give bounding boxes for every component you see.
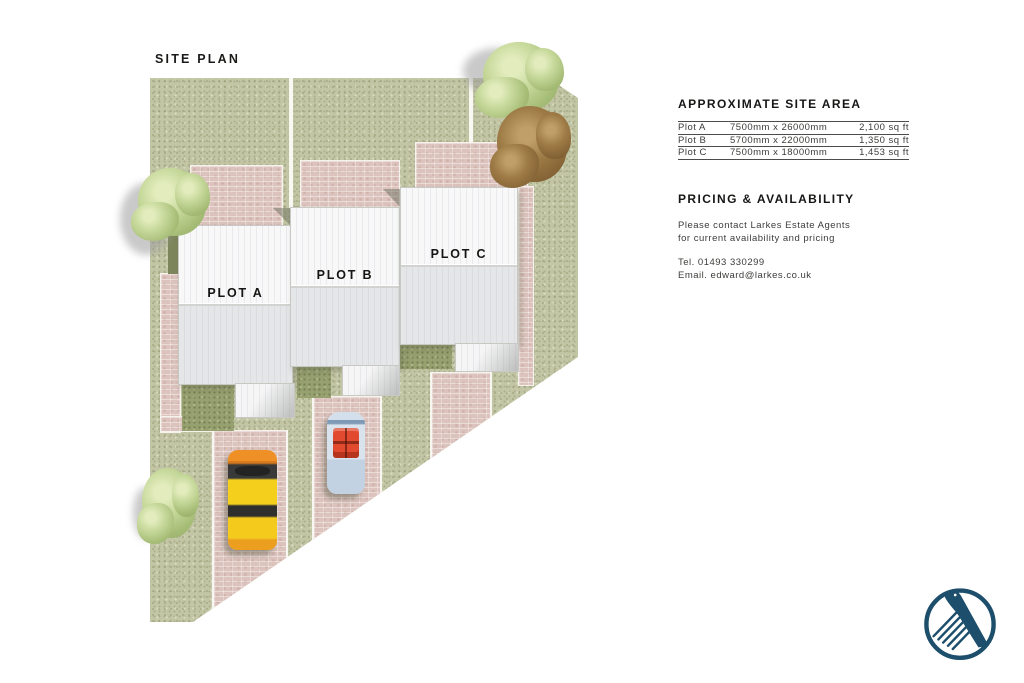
area-cell: 2,100 sq ft bbox=[843, 122, 909, 133]
larkes-logo bbox=[920, 585, 1000, 665]
driveway-plot-c bbox=[430, 372, 492, 492]
blue-convertible-car bbox=[327, 412, 365, 494]
house-plot-c-extension bbox=[455, 343, 519, 372]
site-area-table: Plot A 7500mm x 26000mm 2,100 sq ft Plot… bbox=[678, 121, 909, 160]
contact-block: Tel. 01493 330299 Email. edward@larkes.c… bbox=[678, 256, 812, 282]
site-plan-page: SITE PLAN PLOT A PLOT B bbox=[0, 0, 1024, 683]
garden-patch-a bbox=[182, 385, 234, 431]
pricing-heading: PRICING & AVAILABILITY bbox=[678, 192, 855, 206]
tree-green-top-right bbox=[483, 42, 559, 112]
house-plot-a-extension bbox=[235, 383, 295, 418]
table-row: Plot C 7500mm x 18000mm 1,453 sq ft bbox=[678, 147, 909, 160]
house-plot-b-extension bbox=[342, 365, 400, 396]
plot-name-cell: Plot C bbox=[678, 147, 730, 158]
page-title: SITE PLAN bbox=[155, 52, 240, 66]
plot-a-label: PLOT A bbox=[179, 286, 292, 300]
patio-plot-b bbox=[300, 160, 400, 209]
dimensions-cell: 7500mm x 26000mm bbox=[730, 122, 843, 133]
car-red-seats bbox=[333, 428, 360, 458]
pricing-body-line2: for current availability and pricing bbox=[678, 232, 850, 245]
bird-logo-icon bbox=[920, 585, 1000, 665]
plot-b-label: PLOT B bbox=[291, 268, 399, 282]
plot-name-cell: Plot A bbox=[678, 122, 730, 133]
area-cell: 1,453 sq ft bbox=[843, 147, 909, 158]
garden-patch-c bbox=[400, 345, 452, 369]
bush-bottom-left bbox=[142, 468, 196, 538]
site-area-heading: APPROXIMATE SITE AREA bbox=[678, 97, 861, 111]
table-row: Plot A 7500mm x 26000mm 2,100 sq ft bbox=[678, 122, 909, 135]
path-right-of-plot-c bbox=[518, 186, 534, 386]
yellow-car bbox=[228, 450, 277, 550]
pricing-body: Please contact Larkes Estate Agents for … bbox=[678, 219, 850, 245]
email-text: Email. edward@larkes.co.uk bbox=[678, 269, 812, 282]
garden-patch-b bbox=[297, 367, 331, 398]
tree-brown-autumn bbox=[497, 106, 567, 182]
area-cell: 1,350 sq ft bbox=[843, 135, 909, 146]
pricing-body-line1: Please contact Larkes Estate Agents bbox=[678, 219, 850, 232]
telephone-text: Tel. 01493 330299 bbox=[678, 256, 812, 269]
dimensions-cell: 5700mm x 22000mm bbox=[730, 135, 843, 146]
house-plot-b: PLOT B bbox=[290, 207, 400, 367]
house-plot-c: PLOT C bbox=[400, 187, 518, 345]
fence-line bbox=[289, 78, 293, 208]
plot-name-cell: Plot B bbox=[678, 135, 730, 146]
table-row: Plot B 5700mm x 22000mm 1,350 sq ft bbox=[678, 135, 909, 148]
plot-c-label: PLOT C bbox=[401, 247, 517, 261]
dimensions-cell: 7500mm x 18000mm bbox=[730, 147, 843, 158]
tree-green-left bbox=[138, 168, 206, 236]
house-plot-a: PLOT A bbox=[178, 225, 293, 385]
